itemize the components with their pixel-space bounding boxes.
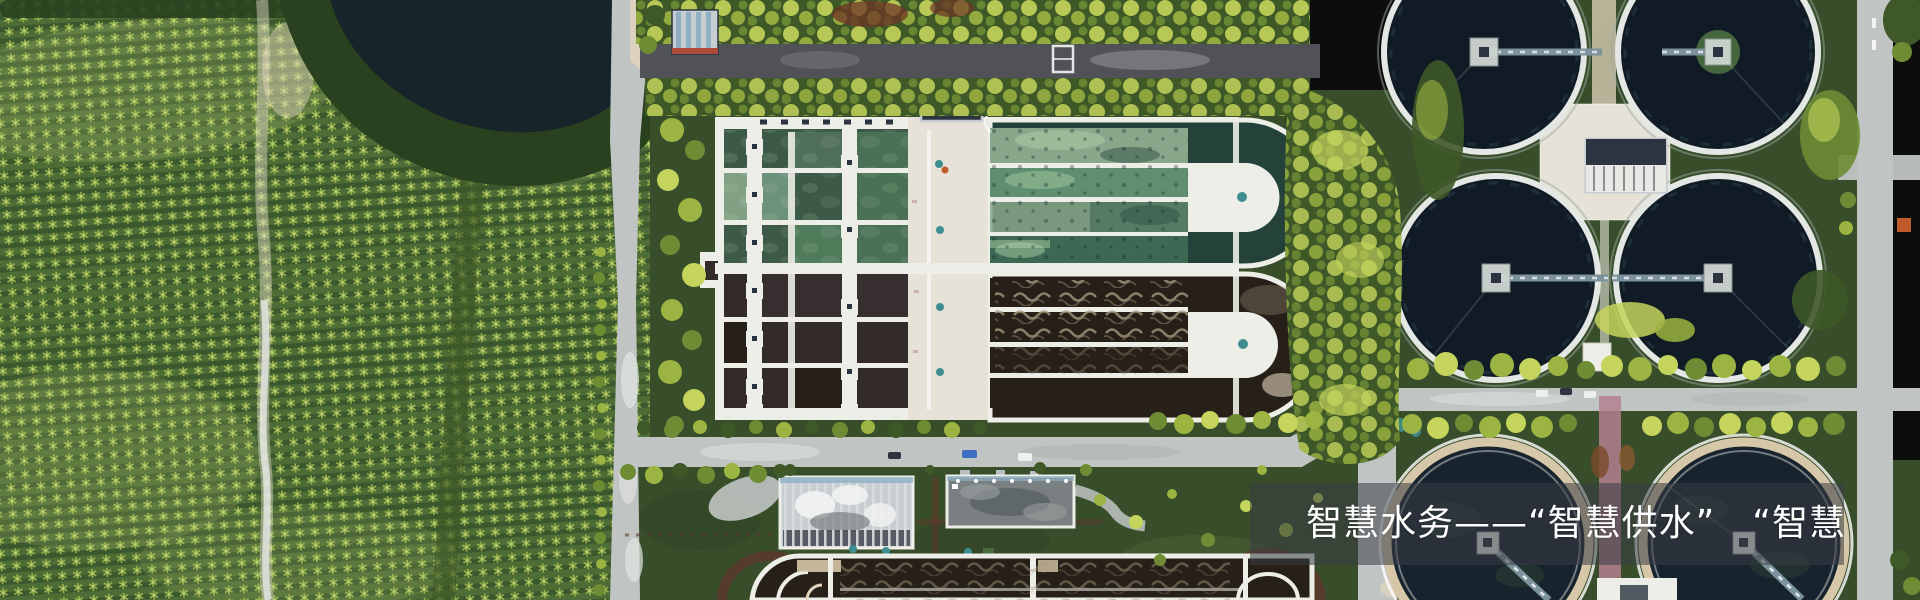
north-service-road: [640, 44, 1320, 78]
hero-banner: 智慧水务——“智慧供水” “智慧排水”: [0, 0, 1920, 600]
red-foliage: [832, 1, 908, 27]
car: [962, 450, 977, 458]
workshop-building: [780, 477, 913, 548]
car: [1584, 391, 1596, 398]
east-road: [1857, 0, 1893, 600]
banner-caption-text: 智慧水务——“智慧供水” “智慧排水”: [1306, 506, 1844, 542]
car: [1560, 388, 1572, 395]
platform-building: [1586, 139, 1666, 192]
u-turn-block: [1188, 163, 1280, 232]
south-lane-tanks: [722, 554, 1320, 600]
car: [1536, 390, 1548, 397]
north-tree-belt: [636, 0, 1320, 116]
hydrant-structure: [1897, 218, 1911, 232]
treatment-facility: [700, 94, 1318, 420]
gatehouse: [672, 10, 718, 54]
u-turn-block: [1188, 312, 1278, 378]
plant-building: [947, 470, 1074, 527]
banner-caption: 智慧水务——“智慧供水” “智慧排水”: [1250, 483, 1844, 565]
car: [1018, 453, 1032, 461]
car: [888, 452, 901, 459]
